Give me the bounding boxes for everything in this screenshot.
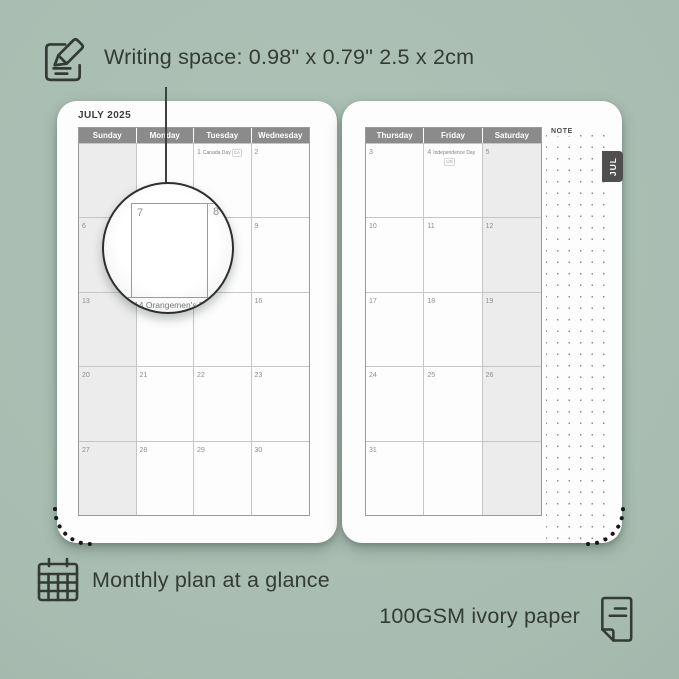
- calendar-cell: 20: [79, 366, 137, 440]
- day-header: Saturday: [483, 128, 541, 143]
- date-number: 10: [369, 223, 377, 230]
- magnified-holiday-text: 14 Orangemen's Day: [134, 300, 214, 310]
- date-number: 25: [427, 372, 435, 379]
- day-header: Wednesday: [252, 128, 310, 143]
- magnified-day-7: 7: [137, 207, 143, 219]
- calendar-cell: 9: [252, 217, 310, 291]
- paper-annotation: 100GSM ivory paper: [379, 604, 580, 629]
- date-number: 12: [486, 223, 494, 230]
- calendar-cell: 23: [252, 366, 310, 440]
- date-number: 11: [427, 223, 434, 230]
- date-number: 28: [140, 447, 148, 454]
- calendar-cell: 18: [424, 292, 482, 366]
- calendar-cell: 17: [366, 292, 424, 366]
- calendar-cell: 29: [194, 441, 252, 515]
- day-header: Tuesday: [194, 128, 252, 143]
- calendar-cell: 13: [79, 292, 137, 366]
- writing-space-annotation: Writing space: 0.98" x 0.79" 2.5 x 2cm: [104, 45, 474, 70]
- magnified-day-8: 8: [213, 206, 219, 218]
- date-number: 30: [255, 447, 263, 454]
- calendar-cell: 26: [483, 366, 541, 440]
- calendar-cell: 22: [194, 366, 252, 440]
- month-title: JULY 2025: [78, 110, 131, 121]
- note-label: NOTE: [551, 127, 575, 136]
- calendar-cell: [424, 441, 482, 515]
- date-number: 31: [369, 447, 377, 454]
- calendar-cell: 24: [366, 366, 424, 440]
- magnified-grid-line: [131, 203, 234, 204]
- calendar-cell: 12: [483, 217, 541, 291]
- left-page: JULY 2025 SundayMondayTuesdayWednesday1C…: [57, 101, 337, 543]
- right-page: ThursdayFridaySaturday34Independence Day…: [342, 101, 622, 543]
- day-header: Friday: [424, 128, 482, 143]
- calendar-cell: 25: [424, 366, 482, 440]
- holiday-label: Canada Day: [203, 150, 231, 156]
- date-number: 21: [140, 372, 148, 379]
- note-pencil-icon: [38, 34, 88, 84]
- date-number: 4: [427, 149, 431, 156]
- date-number: 13: [82, 298, 90, 305]
- calendar-cell: 4Independence DayUS: [424, 143, 482, 217]
- calendar-cell: 10: [366, 217, 424, 291]
- paper-sheet-icon: [595, 594, 637, 646]
- date-number: 20: [82, 372, 90, 379]
- calendar-cell: 31: [366, 441, 424, 515]
- calendar-cell: 19: [483, 292, 541, 366]
- date-number: 16: [255, 298, 263, 305]
- date-number: 22: [197, 372, 205, 379]
- calendar-cell: 11: [424, 217, 482, 291]
- date-number: 5: [486, 149, 490, 156]
- date-number: 17: [369, 298, 377, 305]
- calendar-cell: 21: [137, 366, 195, 440]
- calendar-cell: [483, 441, 541, 515]
- holiday-label: Independence Day: [433, 150, 475, 156]
- calendar-cell: 5: [483, 143, 541, 217]
- date-number: 18: [427, 298, 435, 305]
- calendar-cell: 30: [252, 441, 310, 515]
- monthly-plan-annotation: Monthly plan at a glance: [92, 568, 330, 593]
- note-dot-grid: [546, 127, 614, 539]
- date-number: 26: [486, 372, 494, 379]
- holiday-country-tag: CA: [233, 150, 241, 156]
- calendar-cell: 27: [79, 441, 137, 515]
- day-header: Thursday: [366, 128, 424, 143]
- holiday-country-tag: US: [445, 159, 453, 165]
- calendar-left-grid: SundayMondayTuesdayWednesday1Canada DayC…: [78, 127, 310, 516]
- calendar-grid-icon: [34, 555, 82, 603]
- calendar-right-grid: ThursdayFridaySaturday34Independence Day…: [365, 127, 542, 516]
- date-number: 1: [197, 149, 201, 156]
- calendar-cell: 28: [137, 441, 195, 515]
- calendar-cell: 2: [252, 143, 310, 217]
- magnified-grid-line: [207, 203, 208, 298]
- date-number: 2: [255, 149, 259, 156]
- date-number: 3: [369, 149, 373, 156]
- date-number: 6: [82, 223, 86, 230]
- calendar-cell: 3: [366, 143, 424, 217]
- date-number: 27: [82, 447, 90, 454]
- date-number: 23: [255, 372, 263, 379]
- product-image-frame: Writing space: 0.98" x 0.79" 2.5 x 2cm J…: [0, 0, 679, 679]
- calendar-cell: 16: [252, 292, 310, 366]
- magnified-grid-line: [131, 203, 132, 298]
- callout-line: [165, 87, 167, 184]
- month-tab-label: JUL: [608, 157, 618, 176]
- date-number: 29: [197, 447, 205, 454]
- date-number: 24: [369, 372, 377, 379]
- month-tab-jul: JUL: [602, 151, 623, 182]
- date-number: 9: [255, 223, 259, 230]
- magnifier-circle: 7 8 14 Orangemen's Day: [102, 182, 234, 314]
- day-header: Sunday: [79, 128, 137, 143]
- date-number: 19: [486, 298, 494, 305]
